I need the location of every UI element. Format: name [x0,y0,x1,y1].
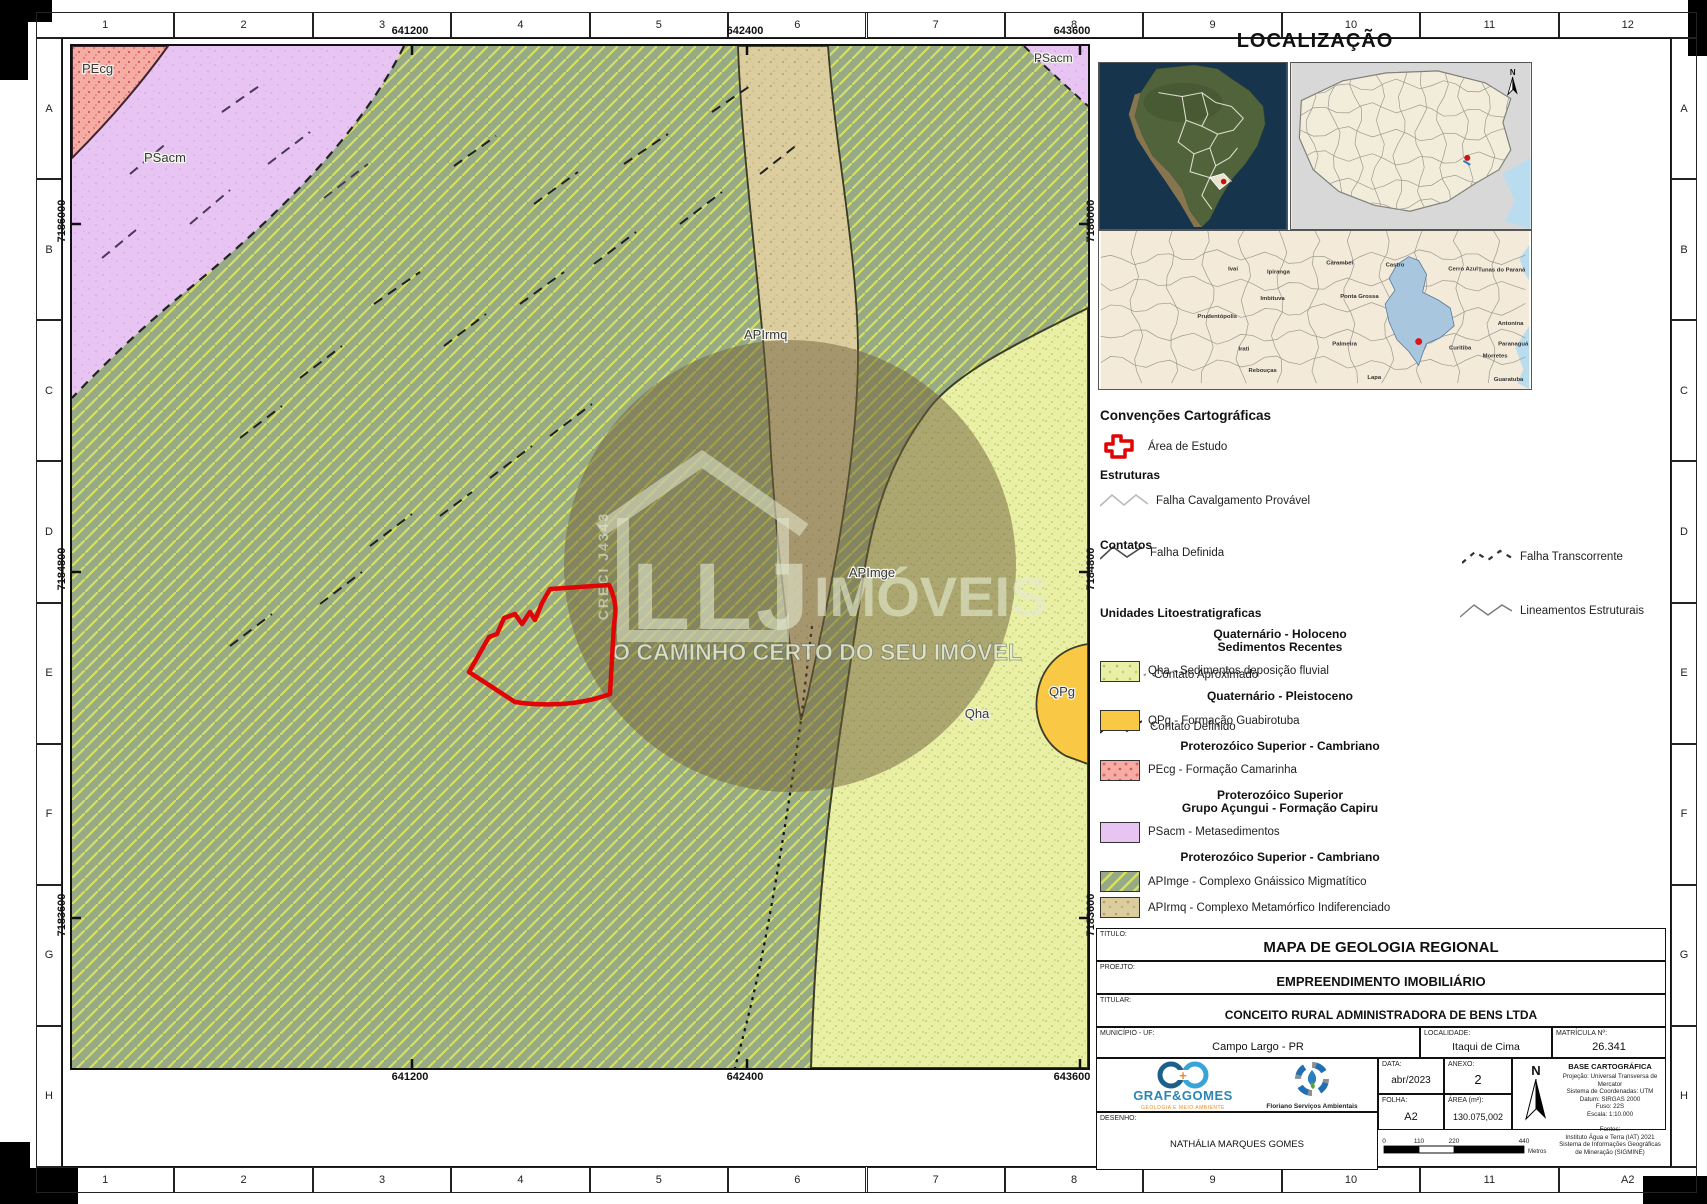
municipality-label-carambeí: Carambeí [1326,261,1353,267]
municipality-label-castro: Castro [1386,263,1405,269]
anexo-cell: ANEXO: 2 [1444,1058,1512,1094]
grid-row-left-F: F [36,744,62,885]
municipality-label-ivaí: Ivaí [1228,267,1238,273]
grid-col-top-7: 7 [867,12,1005,38]
grid-row-left-A: A [36,38,62,179]
grid-col-top-5: 5 [590,12,728,38]
brazil-location-dot [1221,179,1227,185]
brazil-inset-map [1098,62,1288,230]
base-cartografica-lines: Projeção: Universal Transversa de Mercat… [1557,1073,1663,1157]
data-value: abr/2023 [1379,1075,1443,1086]
unit-row-apimge: APImge - Complexo Gnáissico Migmatítico [1100,869,1520,895]
matricula-label: MATRÍCULA Nº: [1556,1030,1607,1037]
unit-swatch-psacm [1100,822,1140,843]
contatos-title: Contatos [1100,538,1152,552]
unit-group-heading-2: Proterozóico Superior - Cambriano [1100,740,1460,753]
localidade-cell: LOCALIDADE: Itaqui de Cima [1420,1027,1552,1058]
grid-col-bottom-5: 5 [590,1167,728,1193]
base-cartografica-title: BASE CARTOGRÁFICA [1557,1062,1663,1071]
municipality-label-irati: Irati [1238,346,1249,352]
municipality-label-lapa: Lapa [1367,375,1382,381]
unit-swatch-apirmq [1100,897,1140,918]
svg-text:N: N [1510,68,1516,77]
base-line: Escala: 1:10.000 [1557,1111,1663,1119]
svg-text:Metros: Metros [1528,1149,1546,1155]
municipio-label: MUNICÍPIO - UF: [1100,1030,1154,1037]
svg-text:110: 110 [1414,1138,1425,1145]
municipality-label-imbituva: Imbituva [1260,296,1285,302]
unit-group-heading-3: Proterozóico SuperiorGrupo Açungui - For… [1100,789,1460,814]
titular-label: TITULAR: [1100,997,1131,1004]
localidade-label: LOCALIDADE: [1424,1030,1470,1037]
municipality-label-rebouças: Rebouças [1249,368,1278,374]
base-line: Instituto Água e Terra (IAT) 2021 [1557,1134,1663,1142]
unit-swatch-apimge [1100,871,1140,892]
municipality-label-curitiba: Curitiba [1449,346,1472,352]
municipality-label-prudentópolis: Prudentópolis [1197,314,1237,320]
unit-row-psacm: PSacm - Metasedimentos [1100,819,1520,845]
desenho-value: NATHÁLIA MARQUES GOMES [1097,1139,1377,1150]
svg-text:220: 220 [1449,1138,1460,1145]
unit-label-qpg: QPg - Formação Guabirotuba [1148,715,1300,727]
unit-swatch-qha [1100,661,1140,682]
map-label-pecg: PEcg [82,61,113,76]
grid-col-bottom-9: 9 [1143,1167,1281,1193]
unit-group-heading-1: Quaternário - Pleistoceno [1100,690,1460,703]
grid-row-left-E: E [36,603,62,744]
area-label: ÁREA (m²): [1448,1097,1483,1104]
grid-col-bottom-7: 7 [867,1167,1005,1193]
grid-row-left-H: H [36,1026,62,1167]
titular-value: CONCEITO RURAL ADMINISTRADORA DE BENS LT… [1097,1008,1665,1022]
north-arrow-icon: N [1519,1063,1553,1125]
grid-col-bottom-11: 11 [1420,1167,1558,1193]
svg-text:GEOLOGIA E MEIO AMBIENTE: GEOLOGIA E MEIO AMBIENTE [1141,1105,1225,1111]
svg-text:GRAF&GOMES: GRAF&GOMES [1133,1088,1233,1103]
unit-swatch-qpg [1100,710,1140,731]
base-line: Sistema de Coordenadas: UTM [1557,1088,1663,1096]
coord-top-642400: 642400 [710,25,780,37]
unit-label-apirmq: APIrmq - Complexo Metamórfico Indiferenc… [1148,902,1390,914]
data-label: DATA: [1382,1061,1402,1068]
svg-text:Floriano Serviços Ambientais: Floriano Serviços Ambientais [1266,1103,1358,1110]
unit-row-pecg: PEcg - Formação Camarinha [1100,757,1520,783]
grid-col-top-1: 1 [36,12,174,38]
folha-cell: FOLHA: A2 [1378,1094,1444,1130]
falha-transcorrente-icon [1462,547,1512,567]
base-line: Fuso: 22S [1557,1103,1663,1111]
grid-col-top-4: 4 [451,12,589,38]
base-line: Sistema de Informações Geográficas [1557,1141,1663,1149]
coord-right-7186000: 7186000 [1085,186,1097,256]
desenho-label: DESENHO: [1100,1115,1137,1122]
falha-transcorrente-label: Falha Transcorrente [1520,551,1623,563]
grid-col-top-2: 2 [174,12,312,38]
north-base-cell: N BASE CARTOGRÁFICA Projeção: Universal … [1512,1058,1666,1130]
matricula-value: 26.341 [1553,1041,1665,1053]
desenho-cell: DESENHO: NATHÁLIA MARQUES GOMES [1096,1112,1378,1170]
unit-row-apirmq: APIrmq - Complexo Metamórfico Indiferenc… [1100,895,1520,921]
area-estudo-label: Área de Estudo [1148,441,1227,453]
coord-left-7186000: 7186000 [56,186,68,256]
grid-row-left-C: C [36,320,62,461]
svg-text:N: N [1531,1063,1540,1078]
map-label-apimge: APImge [849,565,895,580]
estruturas-title: Estruturas [1100,468,1160,482]
municipality-label-ipiranga: Ipiranga [1267,269,1291,275]
campo-largo-dot [1415,338,1422,345]
grid-row-right-C: C [1671,320,1697,461]
coord-top-643600: 643600 [1037,25,1107,37]
grid-row-right-F: F [1671,744,1697,885]
grid-col-bottom-1: 1 [36,1167,174,1193]
study-area-icon [1100,430,1138,464]
coord-bottom-641200: 641200 [375,1071,445,1083]
coord-right-7184800: 7184800 [1085,534,1097,604]
lineamentos-label: Lineamentos Estruturais [1520,605,1644,617]
localidade-value: Itaqui de Cima [1421,1041,1551,1053]
coord-top-641200: 641200 [375,25,445,37]
base-line: Datum: SIRGAS 2000 [1557,1096,1663,1104]
unit-label-pecg: PEcg - Formação Camarinha [1148,764,1297,776]
unit-group-heading-4: Proterozóico Superior - Cambriano [1100,851,1460,864]
matricula-cell: MATRÍCULA Nº: 26.341 [1552,1027,1666,1058]
unit-row-qpg: QPg - Formação Guabirotuba [1100,708,1520,734]
municipality-label-palmeira: Palmeira [1332,342,1357,348]
base-line: Fontes: [1557,1126,1663,1134]
area-value: 130.075,002 [1445,1112,1511,1122]
projeto-label: PROEJTO: [1100,964,1135,971]
titulo-label: TITULO: [1100,931,1127,938]
unit-label-qha: Qha - Sedimentos deposição fluvial [1148,665,1329,677]
grid-col-bottom-4: 4 [451,1167,589,1193]
floriano-logo: Floriano Serviços Ambientais [1252,1060,1372,1112]
unidades-list: Quaternário - HolocenoSedimentos Recente… [1100,622,1520,921]
folha-value: A2 [1379,1111,1443,1123]
legend-title: Convenções Cartográficas [1100,408,1271,423]
map-label-psacm2: PSacm [1034,51,1073,65]
grid-row-right-B: B [1671,179,1697,320]
lineamentos-icon [1460,601,1512,621]
projeto-value: EMPREENDIMENTO IMOBILIÁRIO [1097,974,1665,989]
graf-gomes-logo: + GRAF&GOMES GEOLOGIA E MEIO AMBIENTE [1115,1060,1255,1112]
watermark-tagline: O CAMINHO CERTO DO SEU IMÓVEL [612,638,1022,665]
municipio-value: Campo Largo - PR [1097,1041,1419,1053]
municipality-label-paranaguá: Paranaguá [1498,342,1529,348]
map-label-apirmq: APIrmq [744,327,787,342]
municipality-label-ponta-grossa: Ponta Grossa [1340,294,1379,300]
unit-label-apimge: APImge - Complexo Gnáissico Migmatítico [1148,876,1367,888]
grid-row-right-H: H [1671,1026,1697,1167]
grid-row-right-D: D [1671,461,1697,602]
map-sheet: 1234567891011121234567891011A2AABBCCDDEE… [0,0,1707,1204]
grid-col-bottom-2: 2 [174,1167,312,1193]
municipality-label-antonina: Antonina [1498,321,1524,327]
municipality-label-cerro-azul: Cerro Azul [1448,267,1478,273]
municipalities-map: IvaíIpirangaCarambeíCastroCerro AzulTuna… [1098,230,1532,390]
unit-group-heading-0: Quaternário - HolocenoSedimentos Recente… [1100,628,1460,653]
titulo-value: MAPA DE GEOLOGIA REGIONAL [1097,939,1665,956]
base-line: de Mineração (SIGMINE) [1557,1149,1663,1157]
grid-col-bottom-6: 6 [728,1167,866,1193]
scale-bar: 0 110 220 440 Metros [1380,1136,1560,1160]
titleblock-projeto-cell: PROEJTO: EMPREENDIMENTO IMOBILIÁRIO [1096,961,1666,994]
parana-inset-map: N [1290,62,1532,230]
grid-row-right-G: G [1671,885,1697,1026]
coord-bottom-642400: 642400 [710,1071,780,1083]
unidades-title: Unidades Litoestratigraficas [1100,606,1261,620]
area-cell: ÁREA (m²): 130.075,002 [1444,1094,1512,1130]
svg-text:0: 0 [1382,1138,1386,1145]
base-line: Projeção: Universal Transversa de Mercat… [1557,1073,1663,1088]
municipio-cell: MUNICÍPIO - UF: Campo Largo - PR [1096,1027,1420,1058]
map-label-qpg: QPg [1049,684,1075,699]
falha-cavalgamento-icon [1100,491,1148,511]
titleblock-titulo-cell: TITULO: MAPA DE GEOLOGIA REGIONAL [1096,928,1666,961]
municipality-label-tunas-do-paraná: Tunas do Paraná [1478,267,1526,273]
grid-col-bottom-8: 8 [1005,1167,1143,1193]
parana-location-dot [1464,155,1470,161]
titleblock-titular-cell: TITULAR: CONCEITO RURAL ADMINISTRADORA D… [1096,994,1666,1027]
grid-col-bottom-A2: A2 [1559,1167,1697,1193]
anexo-label: ANEXO: [1448,1061,1474,1068]
map-label-qha: Qha [965,706,990,721]
municipality-label-guaratuba: Guaratuba [1494,377,1524,383]
svg-text:440: 440 [1519,1138,1530,1145]
watermark-brand: LLJ [632,544,813,650]
folha-label: FOLHA: [1382,1097,1407,1104]
logos-cell: + GRAF&GOMES GEOLOGIA E MEIO AMBIENTE Fl… [1096,1058,1378,1112]
falha-cavalgamento-label: Falha Cavalgamento Provável [1156,495,1310,507]
grid-col-bottom-3: 3 [313,1167,451,1193]
map-label-psacm: PSacm [144,150,186,165]
unit-swatch-pecg [1100,760,1140,781]
data-cell: DATA: abr/2023 [1378,1058,1444,1094]
svg-text:+: + [1179,1068,1187,1083]
anexo-value: 2 [1445,1072,1511,1087]
area-estudo-row: Área de Estudo [1100,430,1227,464]
watermark-creci: CRECI J4343 [595,512,611,620]
municipality-label-morretes: Morretes [1483,353,1509,359]
map-frame: LLJ IMÓVEIS O CAMINHO CERTO DO SEU IMÓVE… [70,44,1090,1070]
localizacao-title: LOCALIZAÇÃO [1098,30,1532,53]
falha-definida-label: Falha Definida [1150,547,1224,559]
grid-col-bottom-10: 10 [1282,1167,1420,1193]
unit-row-qha: Qha - Sedimentos deposição fluvial [1100,658,1520,684]
grid-col-top-12: 12 [1559,12,1697,38]
grid-row-right-A: A [1671,38,1697,179]
coord-left-7183600: 7183600 [56,880,68,950]
coord-left-7184800: 7184800 [56,534,68,604]
unit-label-psacm: PSacm - Metasedimentos [1148,826,1280,838]
geology-map: LLJ IMÓVEIS O CAMINHO CERTO DO SEU IMÓVE… [72,46,1088,1068]
base-line [1557,1119,1663,1127]
